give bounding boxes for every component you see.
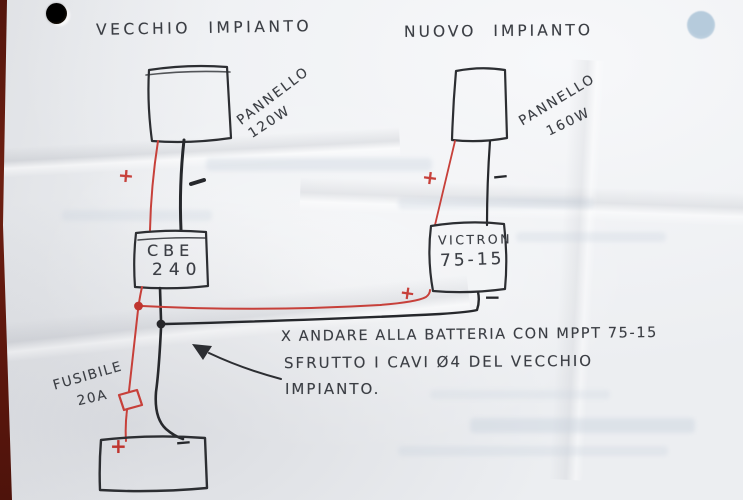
new-plus-sign-bottom: + <box>399 282 417 305</box>
new-minus-sign-top: − <box>491 163 510 189</box>
note-line3: IMPIANTO. <box>285 380 380 398</box>
old-positive-wire-lower <box>139 287 142 303</box>
photo-of-hand-drawn-wiring-sketch: VECCHIO IMPIANTO NUOVO IMPIANTO PANNELLO… <box>0 0 743 500</box>
new-controller-label-line1: VICTRON <box>438 231 512 247</box>
negative-junction-to-battery-wire <box>156 328 183 439</box>
wiring-sketch-strokes <box>0 0 743 500</box>
note-arrow-line <box>209 353 281 379</box>
old-controller-box-double-line <box>138 238 205 240</box>
positive-link-wire <box>142 290 430 309</box>
old-plus-sign-top: + <box>117 164 135 187</box>
old-controller-label-line2: 240 <box>152 260 202 280</box>
new-positive-wire <box>435 141 455 225</box>
new-system-title: NUOVO IMPIANTO <box>404 21 593 41</box>
old-panel-box <box>148 66 231 142</box>
old-panel-box-extra-stroke <box>146 71 230 75</box>
new-minus-sign-bottom: − <box>484 285 501 309</box>
positive-junction-to-fuse-wire <box>129 310 138 391</box>
battery-minus-sign: − <box>174 429 193 454</box>
old-negative-arrow-mark <box>191 180 204 184</box>
positive-junction-dot <box>134 302 143 311</box>
old-negative-wire-lower <box>160 288 161 320</box>
negative-junction-dot <box>157 320 166 329</box>
new-panel-box <box>452 68 507 141</box>
old-positive-wire <box>150 141 158 230</box>
note-line2: SFRUTTO I CAVI Ø4 DEL VECCHIO <box>284 352 593 372</box>
new-negative-wire <box>487 141 490 225</box>
old-controller-label-line1: CBE <box>147 241 194 260</box>
old-negative-wire <box>180 140 184 230</box>
battery-plus-sign: + <box>110 434 127 458</box>
new-controller-label-line2: 75-15 <box>440 249 505 271</box>
new-plus-sign-top: + <box>421 166 439 190</box>
fuse-symbol <box>119 390 142 410</box>
old-system-title: VECCHIO IMPIANTO <box>96 17 312 39</box>
